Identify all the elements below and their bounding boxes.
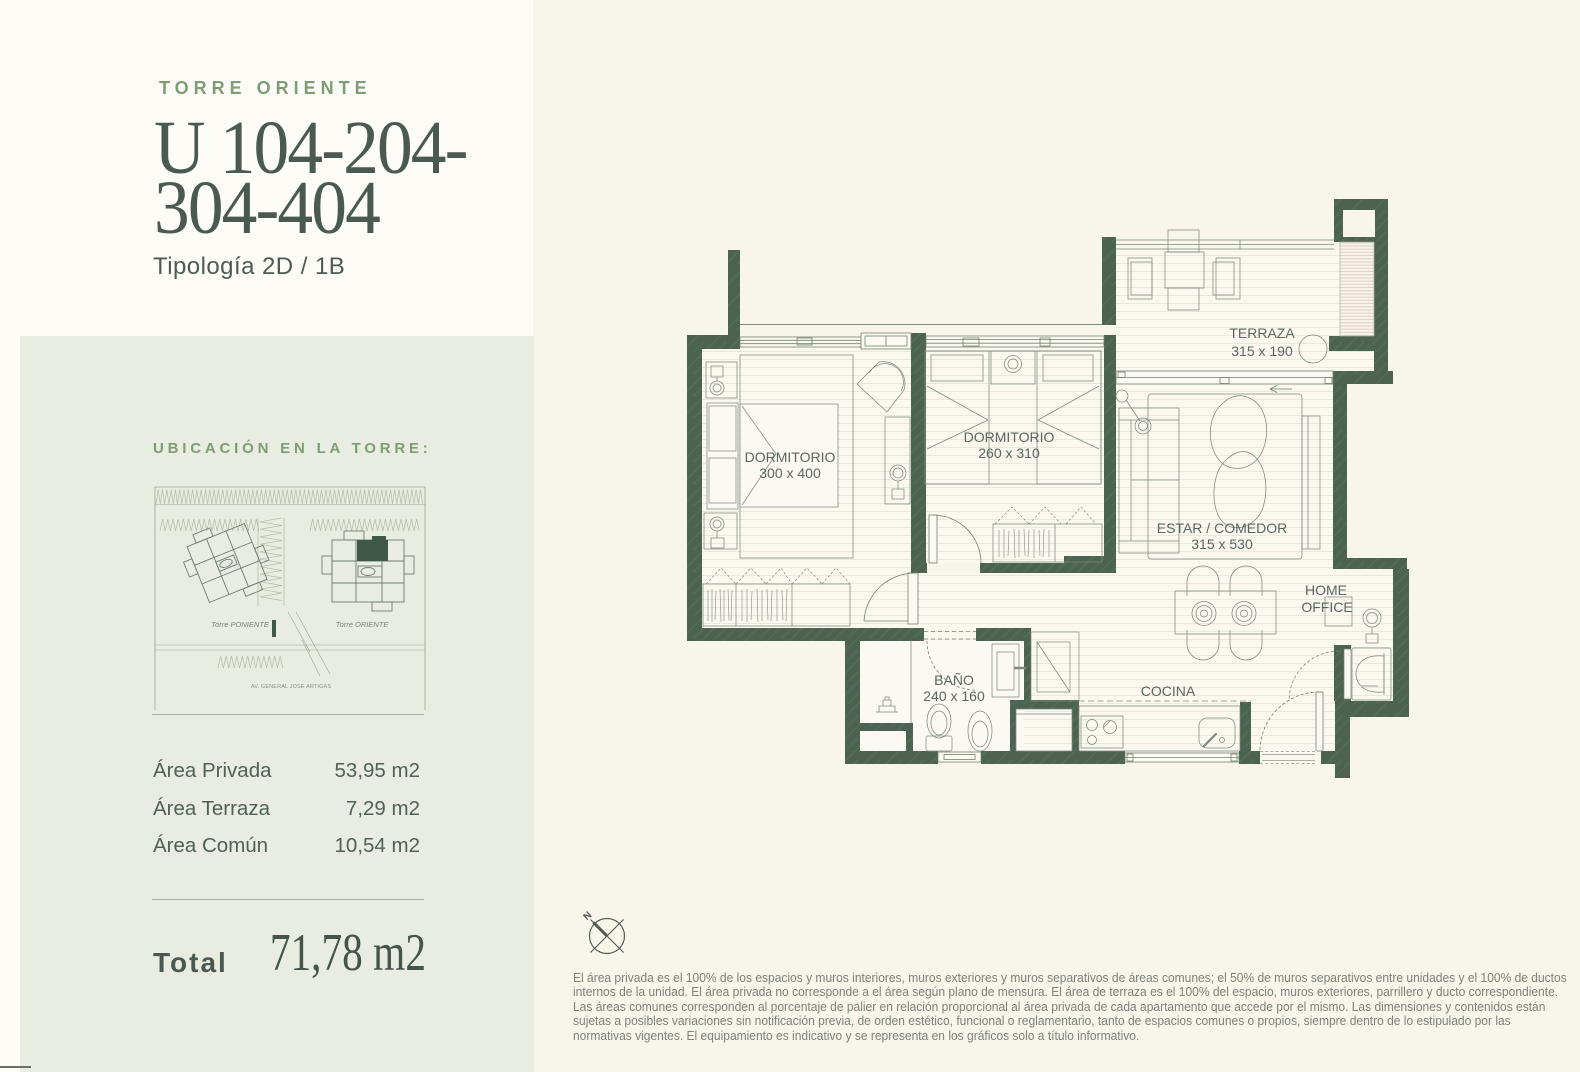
- svg-text:OFFICE: OFFICE: [1301, 599, 1352, 615]
- svg-text:COCINA: COCINA: [1141, 683, 1196, 699]
- svg-text:DORMITORIO: DORMITORIO: [964, 429, 1055, 445]
- svg-text:Torre PONIENTE: Torre PONIENTE: [211, 620, 270, 629]
- svg-text:315 x 190: 315 x 190: [1231, 343, 1293, 359]
- svg-text:AV. GENERAL JOSÉ ARTIGAS: AV. GENERAL JOSÉ ARTIGAS: [251, 683, 332, 690]
- svg-text:260 x 310: 260 x 310: [978, 445, 1040, 461]
- svg-text:BAÑO: BAÑO: [934, 672, 974, 688]
- svg-text:315 x 530: 315 x 530: [1191, 536, 1253, 552]
- svg-text:300 x 400: 300 x 400: [759, 465, 821, 481]
- svg-text:DORMITORIO: DORMITORIO: [745, 449, 836, 465]
- svg-text:240 x 160: 240 x 160: [923, 688, 985, 704]
- svg-text:TERRAZA: TERRAZA: [1229, 325, 1295, 341]
- svg-text:HOME: HOME: [1305, 582, 1347, 598]
- svg-text:Torre ORIENTE: Torre ORIENTE: [336, 620, 390, 629]
- svg-text:ESTAR / COMEDOR: ESTAR / COMEDOR: [1157, 520, 1287, 536]
